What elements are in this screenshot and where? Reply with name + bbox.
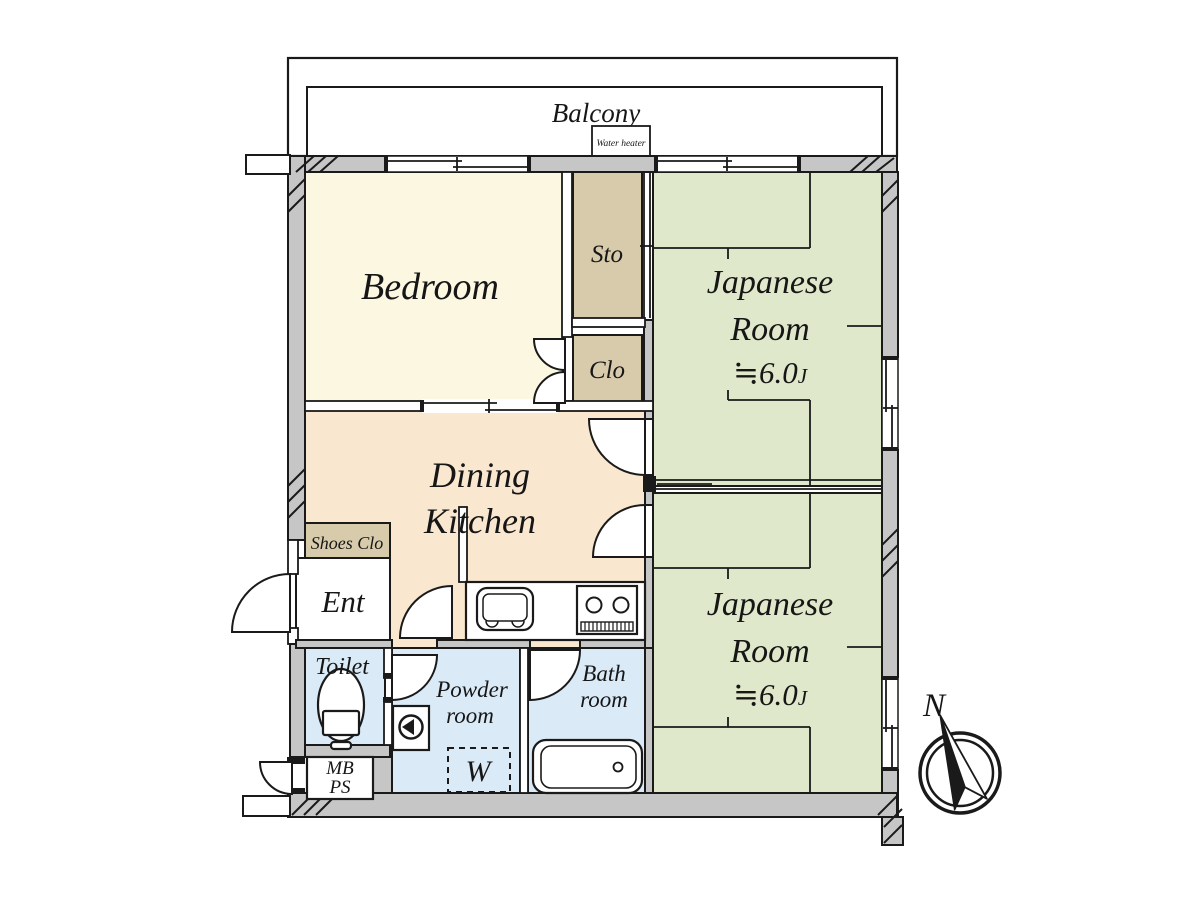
shoes-clo-label: Shoes Clo (311, 533, 384, 553)
dining-label-line2: Kitchen (423, 501, 536, 541)
dining-label-line1: Dining (429, 455, 530, 495)
japanese1-label-line2: Room (729, 311, 809, 348)
balcony-label: Balcony (552, 98, 640, 128)
japanese2-size: ≒6.0J (733, 677, 809, 712)
compass-needle-icon (924, 710, 987, 810)
bathtub-icon (533, 740, 642, 793)
compass: N (920, 688, 1000, 813)
floor-plan-drawing: Balcony Water heater (0, 0, 1200, 900)
bedroom-label: Bedroom (361, 266, 499, 308)
powder-label-line2: room (446, 703, 494, 728)
entrance-door (232, 574, 290, 632)
toilet-label: Toilet (315, 654, 370, 680)
water-heater-label: Water heater (597, 139, 646, 149)
japanese1-size: ≒6.0J (733, 355, 809, 390)
kitchen-sink-icon (477, 588, 533, 630)
bath-label-line2: room (580, 687, 628, 712)
washbasin-icon (393, 706, 429, 750)
kitchen-counter (466, 582, 645, 640)
mb-ps-door (260, 762, 292, 794)
exterior-notch-bottom (243, 796, 290, 816)
washing-machine-label: W (466, 755, 494, 788)
balcony: Balcony Water heater (288, 58, 897, 156)
mb-ps-box: MB PS (307, 757, 373, 799)
ps-label: PS (328, 777, 351, 798)
floor-plan-page: Balcony Water heater (0, 0, 1200, 900)
japanese2-label-line1: Japanese (707, 586, 834, 623)
mb-label: MB (325, 758, 354, 779)
japanese2-label-line2: Room (729, 633, 809, 670)
compass-north-label: N (922, 688, 947, 724)
entrance-label: Ent (320, 584, 365, 619)
stove-icon (577, 586, 637, 634)
japanese1-label-line1: Japanese (707, 264, 834, 301)
clo-label: Clo (589, 357, 625, 384)
bath-label-line1: Bath (582, 661, 625, 686)
powder-label-line1: Powder (435, 677, 509, 702)
sto-label: Sto (591, 241, 623, 268)
exterior-notch-top (246, 155, 290, 174)
